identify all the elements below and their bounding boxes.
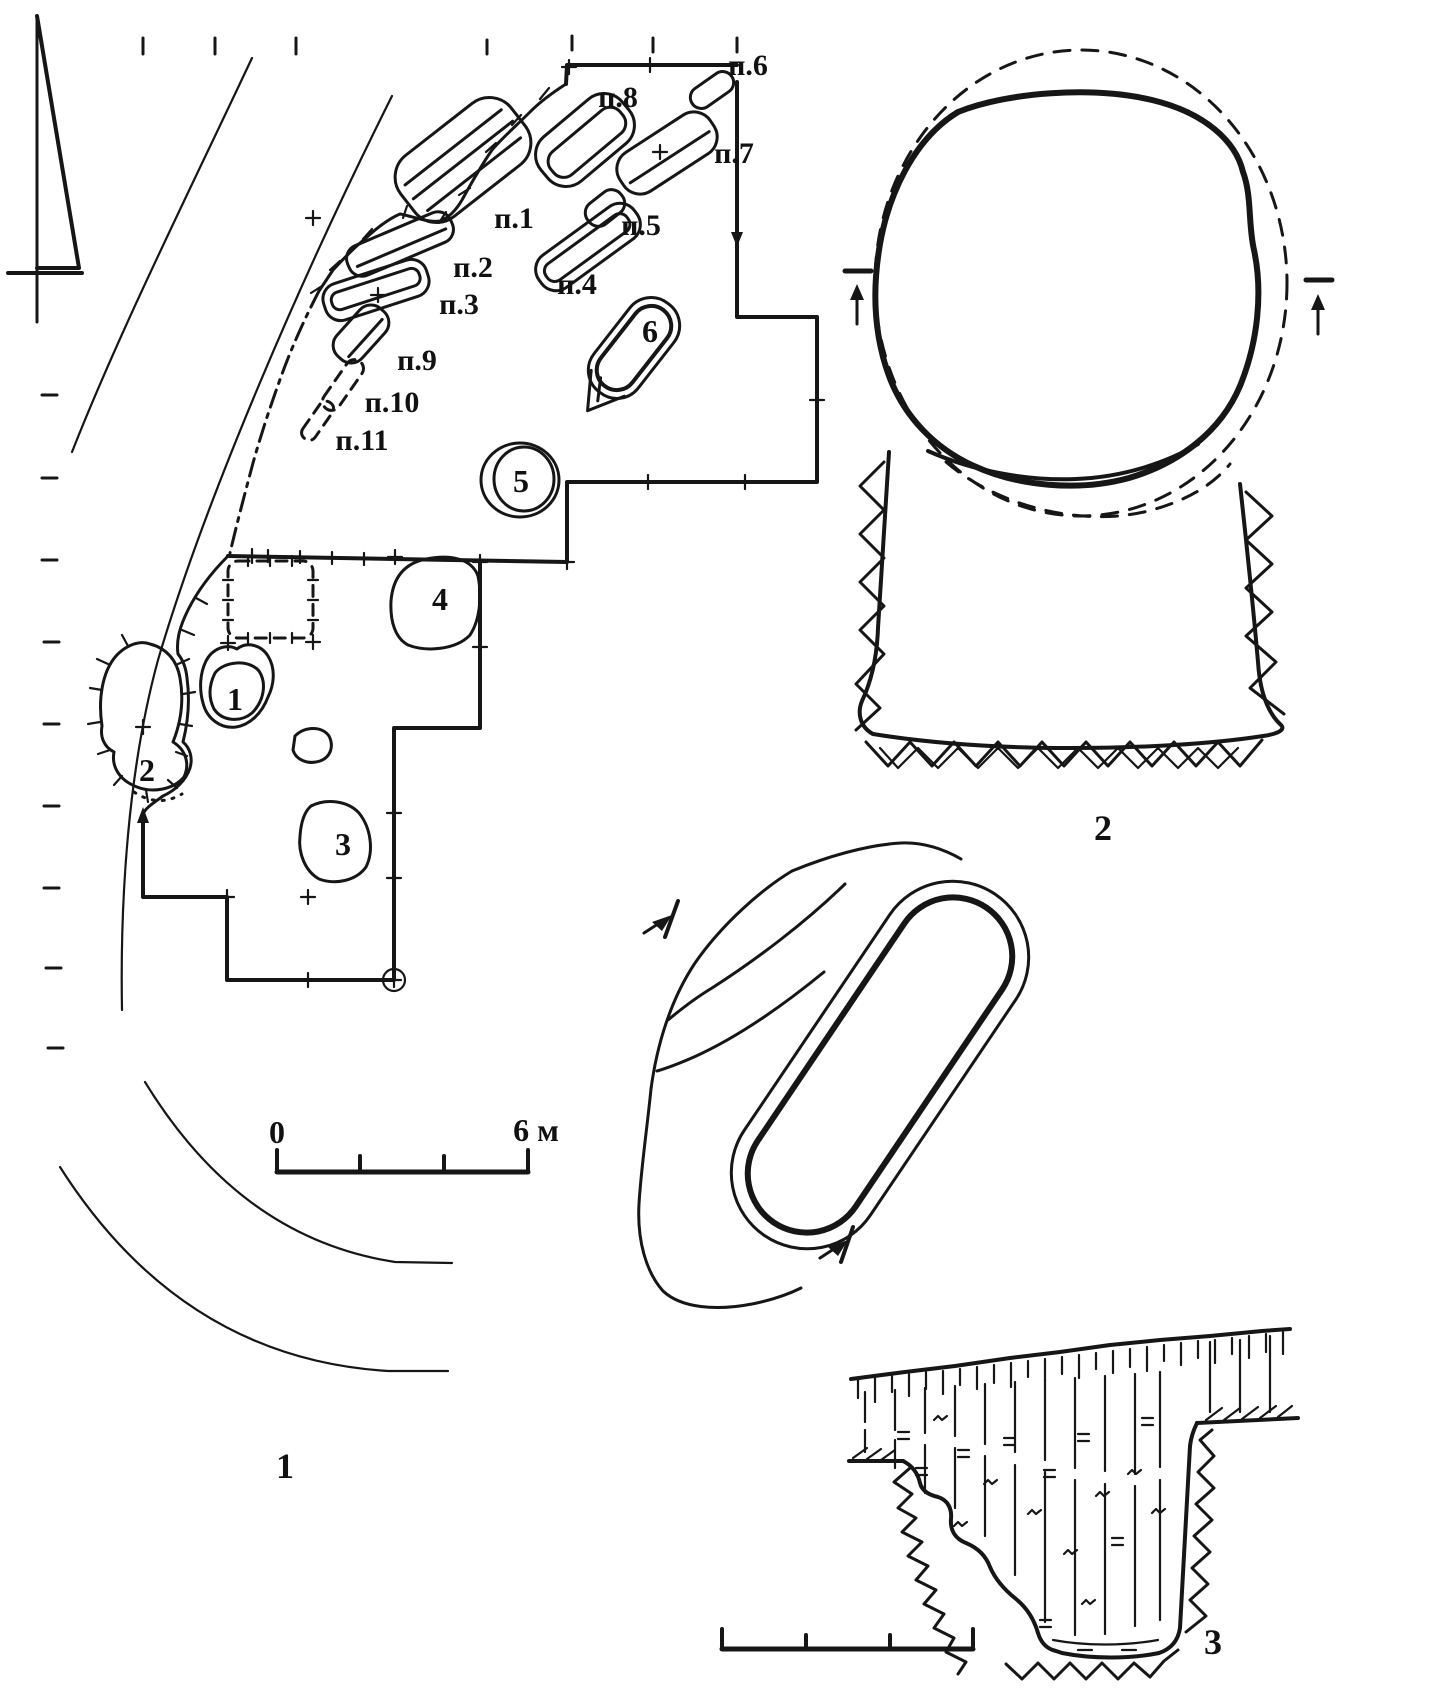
- right-ground-ledge: [1197, 1406, 1298, 1423]
- grave-p11-shape: [299, 398, 337, 443]
- section-marker-left: [845, 271, 871, 324]
- feature-top-ridge: [792, 843, 961, 871]
- label-grave-p7: п.7: [714, 137, 754, 170]
- hatch-bottom-2: [880, 748, 1238, 768]
- scale-zero: 0: [269, 1114, 285, 1150]
- grid-ticks-top: [143, 36, 737, 54]
- figure-2-label: 2: [1094, 808, 1112, 848]
- label-grave-p10: п.10: [365, 386, 420, 419]
- pit-section-profile: [856, 444, 1284, 768]
- label-grave-p4: п.4: [557, 268, 597, 301]
- label-grave-p3: п.3: [439, 288, 479, 321]
- pit-6-shape: [564, 287, 691, 427]
- plan-scale-bar: 0 6 м: [269, 1112, 559, 1172]
- pit-bottom-layer-line: [1053, 1640, 1158, 1645]
- label-pit-5: 5: [513, 463, 529, 499]
- excavation-plan: п.6 п.8 п.7 п.1 п.5 п.2 п.4 п.3 п.9 п.10…: [8, 16, 824, 1486]
- datum-point: [383, 969, 405, 991]
- pit-plan-and-section: 2: [845, 50, 1332, 848]
- elongated-feature-plan: [639, 843, 1058, 1308]
- feature-contour-1: [668, 884, 845, 1020]
- pit-profile-section: 3: [722, 1329, 1298, 1679]
- scanned-figure-page: п.6 п.8 п.7 п.1 п.5 п.2 п.4 п.3 п.9 п.10…: [0, 0, 1443, 1691]
- grave-p10-shape: [319, 356, 367, 414]
- label-grave-p9: п.9: [397, 344, 437, 377]
- profile-scale-bar: [722, 1629, 973, 1649]
- label-pit-2: 2: [139, 752, 155, 788]
- pit-profile-outline: [903, 1423, 1197, 1658]
- archaeological-figure: п.6 п.8 п.7 п.1 п.5 п.2 п.4 п.3 п.9 п.10…: [0, 0, 1443, 1691]
- dashed-square-feature: [223, 556, 318, 643]
- scale-six-m: 6 м: [513, 1112, 559, 1148]
- section-marker-upper-left: [644, 901, 678, 937]
- label-pit-6: 6: [642, 313, 658, 349]
- label-pit-3: 3: [335, 826, 351, 862]
- label-grave-p11: п.11: [335, 424, 388, 457]
- figure-3-label: 3: [1204, 1622, 1222, 1662]
- label-grave-p1: п.1: [494, 202, 534, 235]
- small-spot-shape: [293, 729, 331, 763]
- ground-surface-line: [851, 1329, 1290, 1379]
- label-grave-p8: п.8: [598, 81, 638, 114]
- feature-capsules: [702, 852, 1058, 1279]
- label-grave-p6: п.6: [728, 49, 768, 82]
- section-marker-right: [1306, 280, 1332, 334]
- boundary-arrow-down: [731, 232, 743, 247]
- grave-p2-shape: [342, 207, 458, 280]
- label-grave-p2: п.2: [453, 251, 493, 284]
- grid-ticks-left: [42, 395, 63, 1048]
- surface-ticks: [858, 1332, 1283, 1402]
- pit-solid-outline: [875, 92, 1258, 485]
- label-pit-4: 4: [432, 581, 448, 617]
- label-pit-1: 1: [227, 681, 243, 717]
- north-arrow-icon: [8, 16, 82, 322]
- figure-1-label: 1: [276, 1446, 294, 1486]
- label-grave-p5: п.5: [621, 209, 661, 242]
